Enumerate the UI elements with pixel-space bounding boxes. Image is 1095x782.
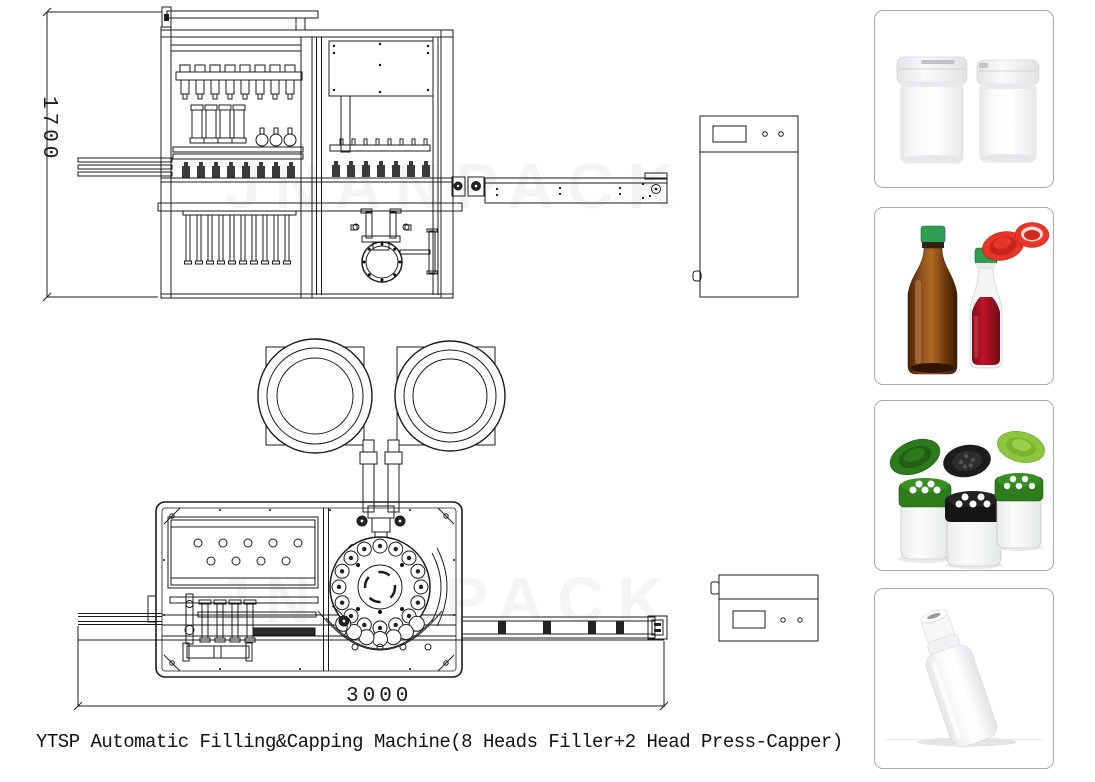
- jar-right: [977, 60, 1039, 162]
- spice-jar-left: [898, 478, 952, 563]
- product-card-sauce-bottles: [874, 207, 1054, 385]
- open-lid-dark-green: [885, 432, 945, 481]
- spice-shaker-jars-photo: [875, 401, 1053, 570]
- white-plastic-jars-photo: [875, 11, 1053, 187]
- control-cabinet-plan: [711, 575, 818, 641]
- cabinet-button: [763, 132, 768, 137]
- control-cabinet-side: [693, 116, 798, 297]
- white-lotion-bottle-photo: [875, 589, 1053, 768]
- hmi-display: [733, 611, 765, 628]
- product-card-white-jars: [874, 10, 1054, 188]
- product-card-lotion-bottle: [874, 588, 1054, 769]
- product-card-spice-jars: [874, 400, 1054, 571]
- cabinet-button: [798, 618, 802, 622]
- sauce-bottles-photo: [875, 208, 1053, 384]
- cabinet-knob: [711, 582, 719, 594]
- cabinet-button: [781, 618, 785, 622]
- open-lid-light-green: [994, 427, 1048, 468]
- dimension-3000: 3000: [346, 685, 412, 708]
- spice-jar-middle: [945, 491, 1003, 569]
- cabinet-button: [779, 132, 784, 137]
- height-dimension: 1700: [37, 8, 162, 301]
- cap-sorter-bowls: [258, 339, 505, 512]
- open-lid-black: [941, 441, 994, 481]
- dimension-1700: 1700: [37, 96, 60, 162]
- amber-bottle: [908, 226, 957, 374]
- hmi-display: [713, 126, 746, 142]
- machine-caption: YTSP Automatic Filling&Capping Machine(8…: [36, 731, 876, 753]
- machine-drawing: JNANPACK JNANPACK 1700: [0, 0, 873, 782]
- spice-jar-right: [995, 473, 1043, 551]
- lotion-bottle: [910, 604, 1000, 750]
- red-sauce-bottle: [970, 248, 1002, 368]
- top-plan-view: 3000: [74, 339, 818, 710]
- jar-left: [897, 57, 967, 163]
- red-caps: [979, 223, 1049, 265]
- product-drawing-page: JNANPACK JNANPACK 1700: [0, 0, 1095, 782]
